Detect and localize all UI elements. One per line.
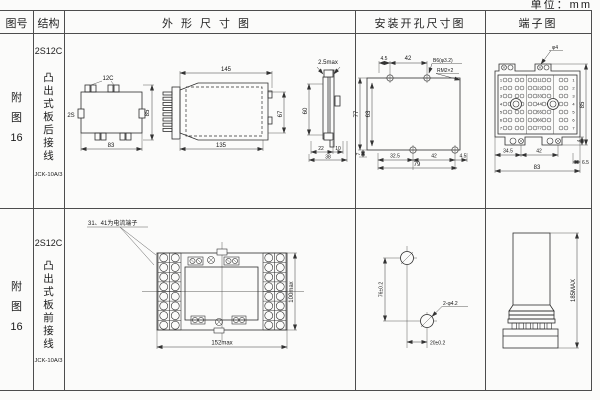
- svg-text:3: 3: [500, 94, 503, 99]
- front-view: 12C 2S 85 83: [67, 76, 154, 151]
- dim-side-bottom: 135: [216, 143, 227, 149]
- install-drawing-rear-wiring: 4.5 42 B6(φ3.2) RM2×2 77 63 7 32.5 42 4.…: [355, 33, 485, 208]
- svg-text:77: 77: [537, 126, 542, 131]
- dim-terminal-65: 6.5: [582, 160, 589, 166]
- svg-text:1: 1: [572, 78, 575, 83]
- dim-terminal-4: 4: [576, 139, 581, 142]
- col-header-install: 安装开孔尺寸图: [355, 15, 485, 31]
- structure-mount-row2: 凸出式板前接线: [33, 260, 64, 356]
- dim-install-325: 32.5: [390, 154, 400, 160]
- right-terminal-block: [263, 253, 286, 330]
- dim-install-45b: 4.5: [460, 154, 467, 160]
- label-install2-holes: 2-φ4.2: [443, 301, 458, 307]
- svg-text:44: 44: [537, 102, 542, 107]
- outline-drawing-front-wiring: 31、41为电流端子 152max: [64, 208, 355, 390]
- terminal-pins: [512, 323, 552, 329]
- svg-text:6: 6: [572, 118, 575, 123]
- svg-text:2: 2: [572, 86, 575, 91]
- outline-drawing-rear-wiring: 12C 2S 85 83 145 135 6: [64, 33, 355, 208]
- dim-front-width: 83: [108, 143, 115, 149]
- dim-outline2-height: 100max: [289, 281, 295, 302]
- label-current-terminals: 31、41为电流端子: [88, 219, 137, 227]
- svg-text:4: 4: [500, 102, 503, 107]
- dim-outline2-width: 152max: [211, 341, 232, 347]
- dim-panel-38: 38: [325, 155, 331, 161]
- svg-text:5: 5: [500, 110, 503, 115]
- structure-model-row1: 2S12C: [33, 46, 64, 56]
- svg-text:6: 6: [500, 118, 503, 123]
- dim-panel-thickness: 2.5max: [318, 60, 338, 66]
- label-12c: 12C: [102, 76, 114, 82]
- svg-text:1: 1: [500, 78, 503, 83]
- dim-terminal-42: 42: [536, 149, 542, 155]
- dim-install2-h: 20±0.2: [430, 341, 445, 347]
- col-header-outline: 外形尺寸图: [64, 15, 355, 31]
- structure-relay-row1: JCK-10A/3: [33, 172, 64, 178]
- catalog-page: 单位：mm 图号 结构 外形尺寸图 安装开孔尺寸图 端子图 附 图 16 2S1…: [0, 0, 600, 400]
- grid-line: [591, 10, 592, 390]
- dim-panel-22: 22: [318, 146, 324, 152]
- install-drawing-front-wiring: 76±0.2 2-φ4.2 20±0.2: [355, 208, 485, 390]
- left-terminal-block: [158, 253, 181, 330]
- structure-model-row2: 2S12C: [33, 238, 64, 248]
- grid-line: [0, 390, 592, 391]
- svg-text:7: 7: [500, 126, 503, 131]
- dim-side-top: 145: [221, 67, 232, 73]
- terminal-diagram-rear-wiring: φ4 1111222233334444555566667777 34.5 42 …: [485, 33, 591, 208]
- dim-terminal-345: 34.5: [503, 149, 513, 155]
- dim-install-63: 63: [366, 110, 372, 117]
- dim-install-79: 79: [414, 162, 421, 168]
- mounting-holes: [385, 73, 460, 155]
- col-header-fig-no: 图号: [0, 15, 33, 31]
- svg-text:5: 5: [572, 110, 575, 115]
- bottom-mounting-screws: [510, 138, 561, 144]
- panel-profile-view: 2.5max 60 22 10 38: [303, 60, 347, 162]
- mounting-holes: [401, 252, 434, 328]
- top-mounting-screws: [502, 65, 550, 70]
- dim-install-42b: 42: [431, 154, 437, 160]
- svg-text:66: 66: [537, 118, 542, 123]
- dim-install-45t: 4.5: [381, 56, 388, 62]
- dim-terminal2-height: 185MAX: [571, 279, 577, 302]
- big-terminal-screws: [511, 99, 559, 110]
- col-header-terminal: 端子图: [485, 15, 591, 31]
- label-screw-note: φ4: [552, 45, 558, 51]
- svg-text:22: 22: [537, 86, 542, 91]
- side-view: 145 135 67: [163, 67, 286, 151]
- dim-install-7: 7: [356, 152, 362, 155]
- svg-text:11: 11: [537, 78, 542, 83]
- svg-text:3: 3: [572, 94, 575, 99]
- structure-mount-row1: 凸出式板后接线: [33, 72, 64, 168]
- svg-text:33: 33: [537, 94, 542, 99]
- col-header-structure: 结构: [33, 15, 64, 31]
- structure-relay-row2: JCK-10A/3: [33, 358, 64, 364]
- dim-side-height: 67: [278, 110, 284, 117]
- dim-install2-v: 76±0.2: [379, 282, 385, 297]
- grid-line: [0, 10, 592, 11]
- label-thread-note: RM2×2: [437, 68, 453, 74]
- dim-install-77: 77: [354, 110, 360, 117]
- dim-panel-10: 10: [335, 146, 341, 152]
- dim-panel-height: 60: [303, 107, 309, 114]
- fig-no-row2: 附 图 16: [0, 277, 33, 337]
- fig-no-row1: 附 图 16: [0, 88, 33, 148]
- svg-text:2: 2: [500, 86, 503, 91]
- label-2s: 2S: [67, 113, 74, 119]
- dim-terminal-85: 85: [580, 101, 586, 108]
- dim-install-42t: 42: [405, 56, 412, 62]
- svg-text:4: 4: [572, 102, 575, 107]
- svg-text:55: 55: [537, 110, 542, 115]
- dim-front-height: 85: [145, 109, 151, 116]
- dim-terminal-83: 83: [534, 165, 541, 171]
- label-hole-note: B6(φ3.2): [433, 58, 453, 64]
- terminal-side-view-front-wiring: 185MAX: [485, 208, 591, 390]
- svg-text:7: 7: [572, 126, 575, 131]
